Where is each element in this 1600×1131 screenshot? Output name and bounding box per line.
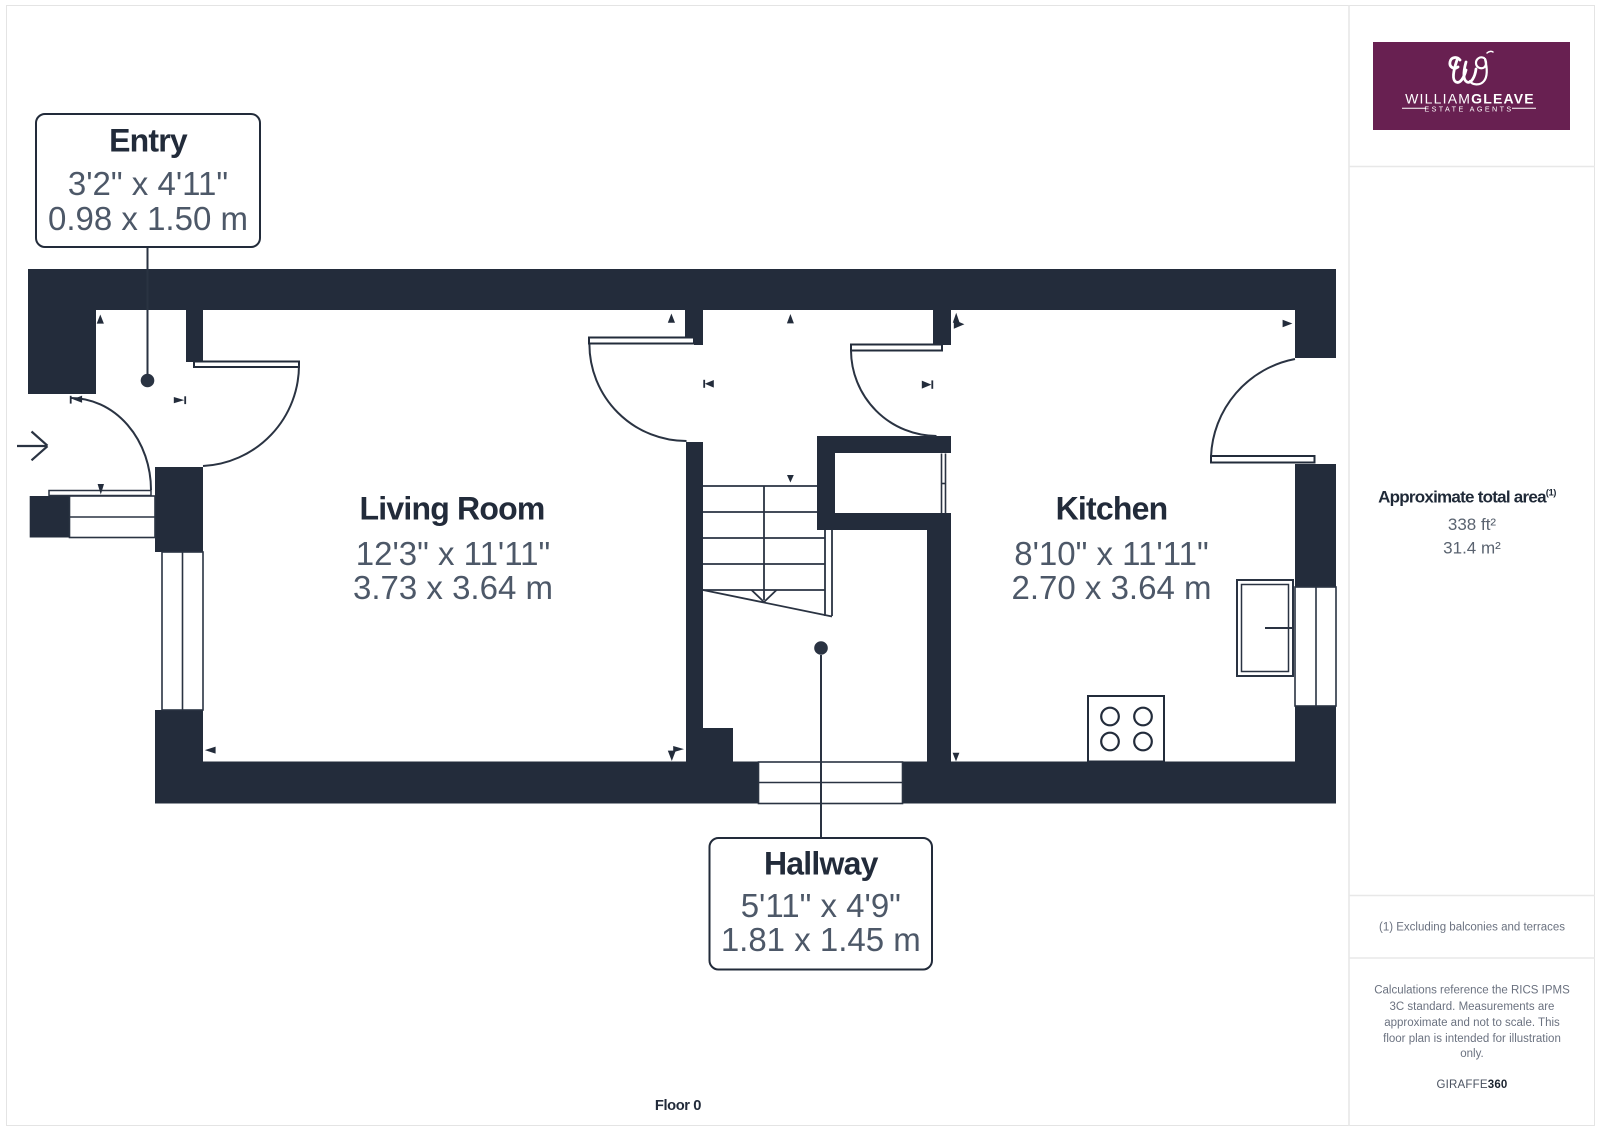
svg-text:1.81 x 1.45 m: 1.81 x 1.45 m [721,921,921,958]
svg-text:approximate and not to scale.: approximate and not to scale. This [1384,1017,1560,1029]
svg-text:Entry: Entry [109,123,188,159]
svg-text:2.70 x 3.64 m: 2.70 x 3.64 m [1012,569,1212,606]
svg-text:Hallway: Hallway [764,846,879,882]
svg-text:ESTATE AGENTS: ESTATE AGENTS [1424,104,1513,113]
svg-text:8'10" x 11'11": 8'10" x 11'11" [1014,535,1208,572]
svg-text:5'11" x 4'9": 5'11" x 4'9" [741,887,901,924]
svg-text:only.: only. [1460,1048,1483,1060]
svg-text:0.98 x 1.50 m: 0.98 x 1.50 m [48,200,248,237]
svg-text:(1) Excluding balconies and te: (1) Excluding balconies and terraces [1379,922,1565,934]
svg-text:GIRAFFE360: GIRAFFE360 [1436,1079,1507,1091]
svg-text:3.73 x 3.64 m: 3.73 x 3.64 m [353,569,553,606]
svg-text:floor plan is intended for ill: floor plan is intended for illustration [1383,1033,1561,1045]
svg-text:3C standard. Measurements are: 3C standard. Measurements are [1390,1001,1555,1013]
svg-text:Floor 0: Floor 0 [655,1098,701,1114]
svg-text:12'3" x 11'11": 12'3" x 11'11" [356,535,550,572]
svg-text:3'2" x 4'11": 3'2" x 4'11" [68,165,228,202]
svg-text:Approximate total area(1): Approximate total area(1) [1378,487,1556,506]
svg-text:Calculations reference the RIC: Calculations reference the RICS IPMS [1374,984,1570,996]
svg-text:Living Room: Living Room [360,491,545,527]
svg-text:Kitchen: Kitchen [1056,491,1168,527]
svg-text:338 ft²: 338 ft² [1448,515,1497,534]
svg-text:31.4 m²: 31.4 m² [1443,538,1501,557]
